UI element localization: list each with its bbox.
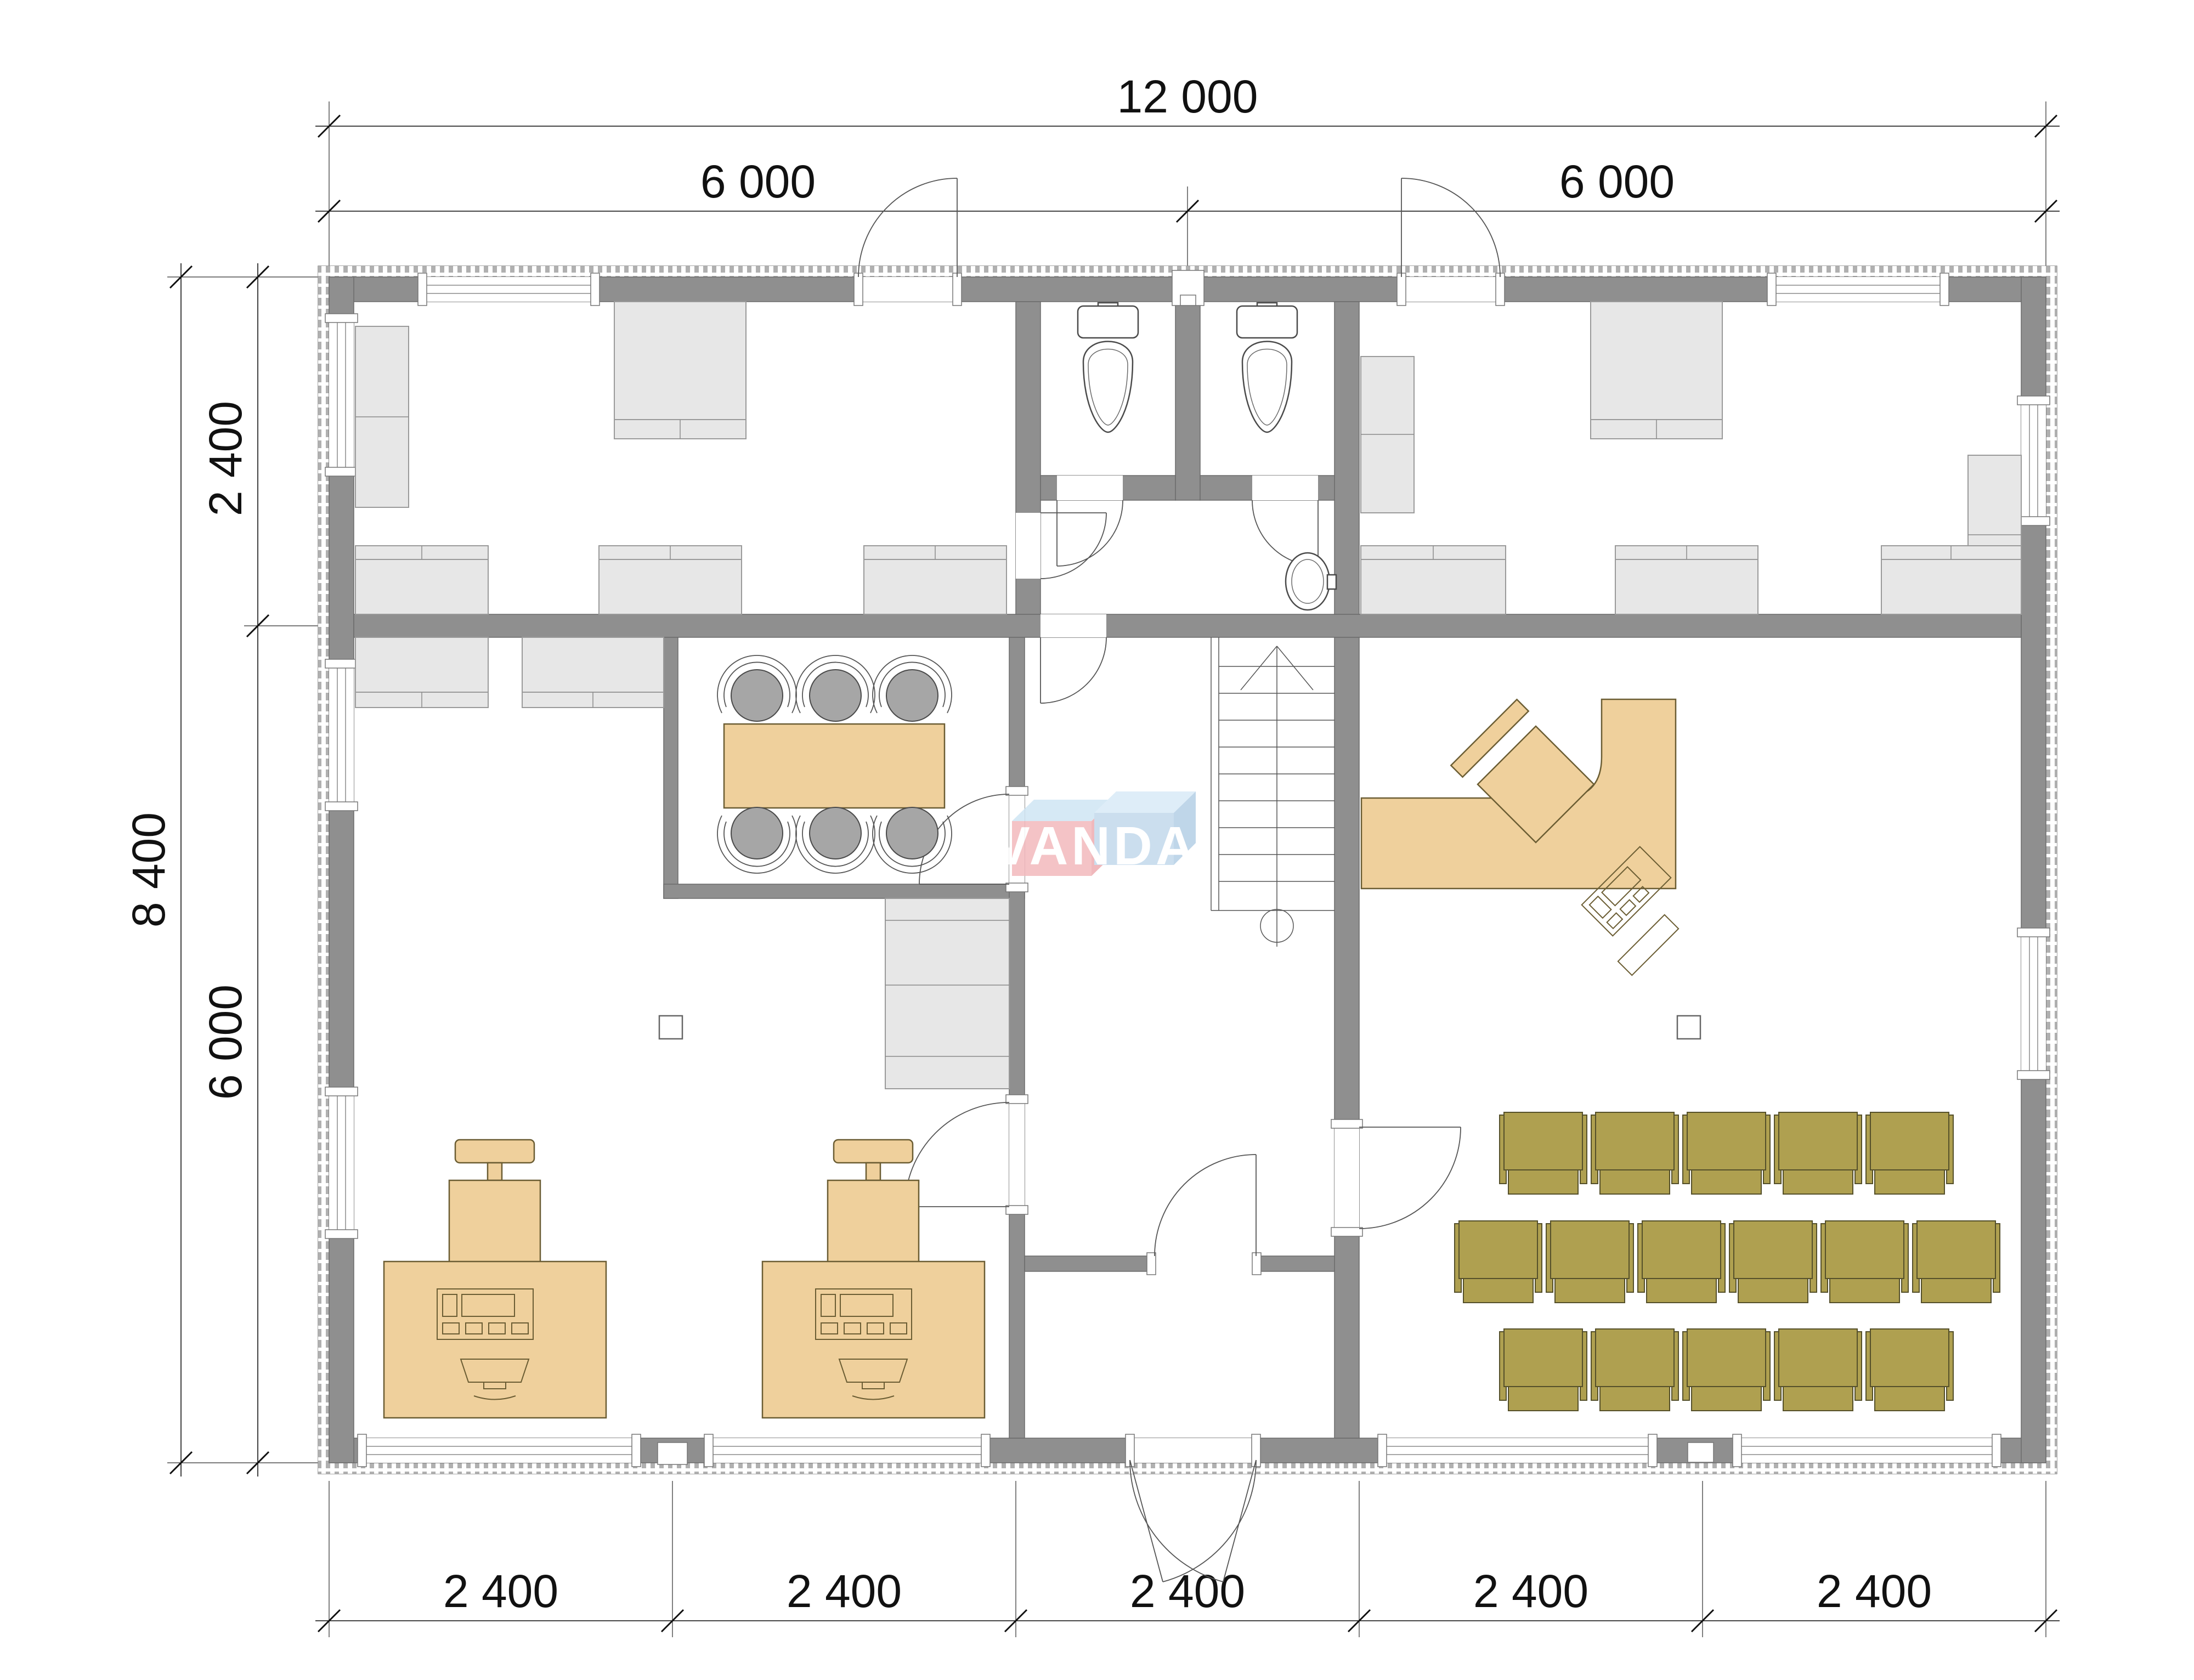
meeting-room-furniture [717,655,952,873]
desk [522,637,664,708]
window-right-2 [2017,928,2050,1079]
watermark-text: VANDA [994,816,1197,876]
meeting-chair [717,807,796,873]
desk [355,546,488,614]
stair-arrow [1241,646,1277,690]
workstation-1 [384,1140,606,1418]
door-wc-lobby-to-hall [1041,614,1106,703]
desk [1361,546,1506,614]
window-bottom-2 [704,1434,990,1467]
door-top-right-office [1397,178,1505,306]
meeting-table [724,724,945,808]
office-right-furniture [1361,302,2021,614]
window-bottom-4 [1733,1434,2001,1467]
dim-label-left-total: 8 400 [123,812,174,927]
door-entry-to-hall [1147,1155,1261,1275]
meeting-room-wall-bottom [664,884,1025,898]
dim-label-top-total: 12 000 [1117,71,1258,122]
floor-box-left-room [659,1016,682,1039]
desk [1615,546,1758,614]
dim-label-top-left: 6 000 [700,156,816,207]
desk [599,546,742,614]
toilet-2 [1237,303,1297,432]
dim-label-bottom-5: 2 400 [1817,1565,1932,1617]
door-entry-to-auditorium [1331,1119,1461,1236]
dimension-top-halves: 6 000 6 000 [315,156,2060,266]
window-left-3 [325,1087,358,1238]
workstation-2 [762,1140,985,1418]
door-left-room [905,1095,1028,1214]
auditorium-chair-row-1 [1500,1112,1953,1194]
dimension-bottom-modules: 2 400 2 400 2 400 2 400 2 400 [315,1481,2060,1637]
staircase [1211,637,1335,947]
meeting-chair [796,655,875,721]
window-top-left-office [418,273,600,306]
left-room-cabinets [355,637,664,708]
window-left-1 [325,314,358,476]
shelving-unit [885,898,1009,1089]
bottom-pier-box-left [658,1443,687,1464]
window-right-1 [2017,396,2050,525]
dimension-left-parts: 2 400 6 000 [200,263,318,1477]
dim-label-left-bottom: 6 000 [200,985,251,1100]
dim-label-left-top: 2 400 [200,401,251,516]
wc-wall-middle [1175,302,1200,500]
cabinet [355,326,409,507]
floor-plan-page: 12 000 6 000 6 000 8 400 2 400 6 000 [0,0,2194,1680]
desk [614,302,746,439]
office-left-furniture [355,302,1006,614]
meeting-chair [873,655,952,721]
window-bottom-3 [1378,1434,1657,1467]
dim-label-top-right: 6 000 [1559,156,1675,207]
door-office-to-wc-lobby [1016,513,1106,579]
hall-wall-right [1335,637,1359,1438]
floor-box-auditorium [1677,1016,1700,1039]
auditorium-chair-row-3 [1500,1329,1953,1411]
wc-fixtures [1078,303,1336,610]
entry-room-wall-top-left [1025,1256,1155,1271]
entry-room-wall-top-right [1256,1256,1335,1271]
wc-wall-right [1335,302,1359,614]
dim-label-bottom-1: 2 400 [443,1565,558,1617]
door-wc-stall-1 [1057,476,1123,566]
door-top-left-office [854,178,962,306]
desk [864,546,1006,614]
hall-wall-left [1009,637,1025,1438]
dim-label-bottom-3: 2 400 [1130,1565,1245,1617]
window-top-right-office [1767,273,1949,306]
reception [1361,699,1678,975]
auditorium-chair-row-2 [1455,1221,2000,1303]
dim-label-bottom-2: 2 400 [787,1565,902,1617]
interior-wall-divider [354,614,2021,637]
desk [1591,302,1722,439]
meeting-room-wall-left [664,637,678,898]
desk [355,637,488,708]
sink [1286,553,1336,610]
dim-label-bottom-4: 2 400 [1473,1565,1588,1617]
bottom-pier-box-right [1688,1443,1714,1462]
meeting-chair [796,807,875,873]
toilet-1 [1078,303,1138,432]
floor-plan-drawing: 12 000 6 000 6 000 8 400 2 400 6 000 [0,0,2194,1680]
meeting-chair [873,807,952,873]
desk [1881,546,2021,614]
window-bottom-1 [358,1434,641,1467]
cabinet [1361,357,1414,513]
window-left-2 [325,659,358,811]
door-main-entrance [1126,1434,1260,1582]
meeting-chair [717,655,796,721]
